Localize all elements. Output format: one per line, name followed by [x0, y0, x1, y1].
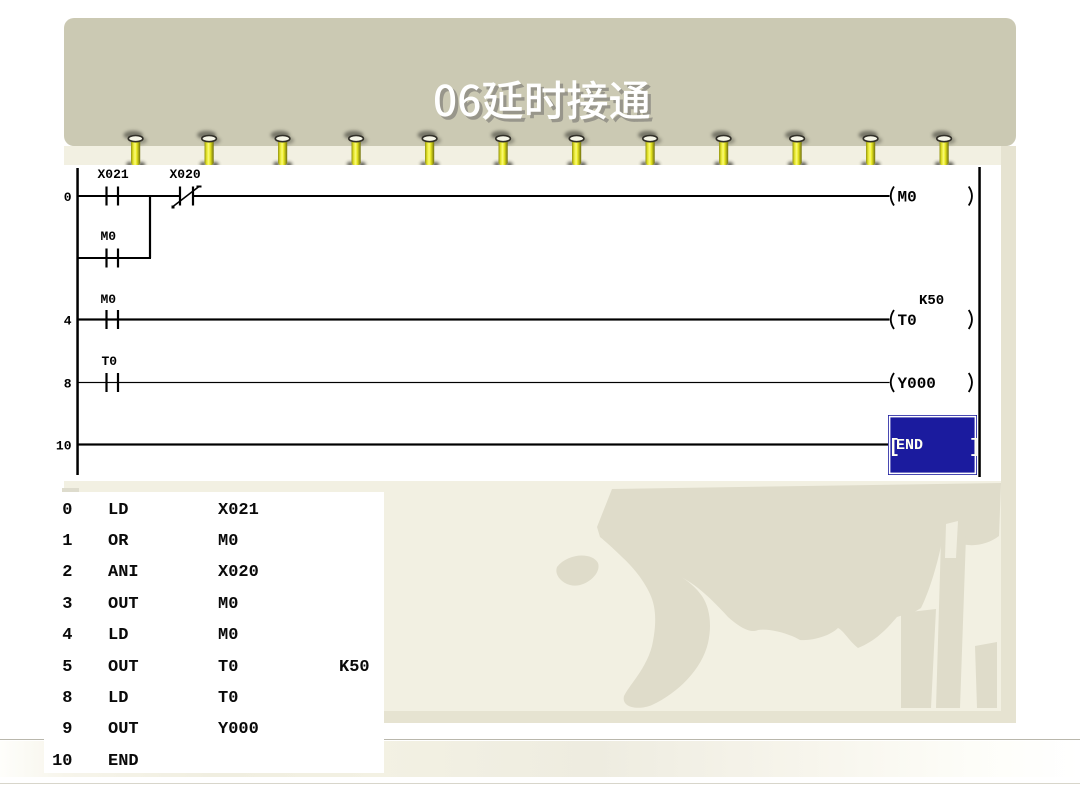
- svg-text:Y000: Y000: [898, 375, 936, 393]
- svg-text:T0: T0: [898, 312, 917, 330]
- svg-text:8: 8: [64, 377, 72, 392]
- svg-text:M0: M0: [101, 229, 117, 244]
- svg-text:END: END: [896, 437, 923, 454]
- svg-text:K50: K50: [919, 293, 944, 309]
- svg-text:T0: T0: [102, 354, 118, 369]
- svg-text:X021: X021: [98, 167, 129, 182]
- svg-text:0: 0: [64, 190, 72, 205]
- svg-text:4: 4: [64, 314, 72, 329]
- svg-text:10: 10: [56, 439, 72, 454]
- svg-text:]: ]: [969, 436, 980, 458]
- svg-text:X020: X020: [170, 167, 201, 182]
- svg-text:M0: M0: [101, 292, 117, 307]
- svg-text:M0: M0: [898, 189, 917, 207]
